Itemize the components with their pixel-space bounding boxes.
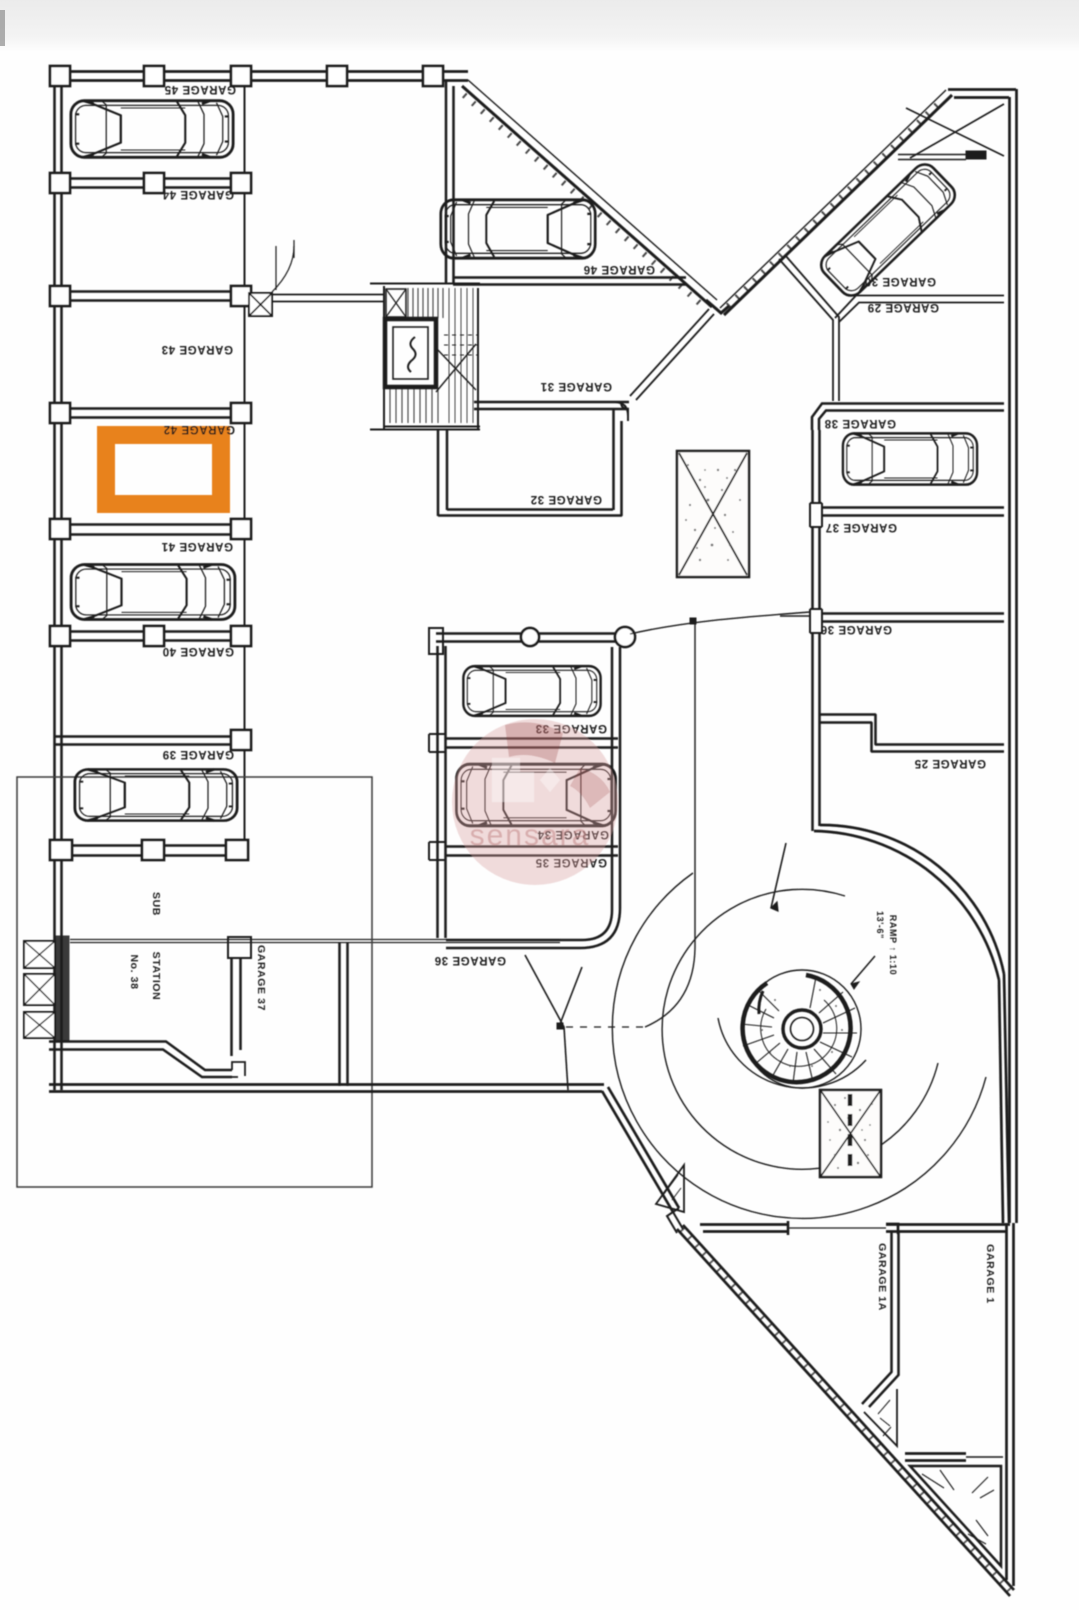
svg-text:GARAGE 46: GARAGE 46 [583, 263, 655, 275]
svg-text:GARAGE 31: GARAGE 31 [540, 380, 612, 392]
svg-text:GARAGE 36: GARAGE 36 [820, 623, 892, 635]
svg-text:GARAGE 29: GARAGE 29 [867, 301, 939, 313]
svg-text:GARAGE 41: GARAGE 41 [161, 540, 233, 552]
svg-text:GARAGE 37: GARAGE 37 [255, 945, 267, 1011]
svg-text:GARAGE 30: GARAGE 30 [864, 275, 936, 287]
svg-text:GARAGE 1: GARAGE 1 [984, 1244, 996, 1304]
svg-text:GARAGE 38: GARAGE 38 [824, 417, 896, 429]
svg-text:RAMP ↑ 1:10: RAMP ↑ 1:10 [888, 915, 898, 975]
svg-text:GARAGE 40: GARAGE 40 [162, 645, 234, 657]
svg-text:GARAGE 37: GARAGE 37 [825, 521, 897, 533]
svg-text:GARAGE 1A: GARAGE 1A [876, 1243, 888, 1311]
svg-text:GARAGE 39: GARAGE 39 [162, 748, 234, 760]
svg-text:GARAGE 44: GARAGE 44 [162, 188, 234, 200]
svg-text:No. 38: No. 38 [128, 954, 140, 989]
svg-text:GARAGE 36: GARAGE 36 [434, 954, 506, 966]
svg-text:GARAGE 42: GARAGE 42 [163, 423, 235, 435]
svg-text:GARAGE 25: GARAGE 25 [914, 757, 986, 769]
svg-text:sensara: sensara [470, 819, 591, 852]
svg-text:GARAGE 43: GARAGE 43 [161, 343, 233, 355]
svg-text:GARAGE 45: GARAGE 45 [164, 83, 236, 95]
svg-text:SUB: SUB [150, 892, 162, 916]
svg-text:13'-6": 13'-6" [875, 911, 885, 939]
svg-text:GARAGE 32: GARAGE 32 [530, 493, 602, 505]
svg-text:STATION: STATION [150, 952, 162, 1001]
